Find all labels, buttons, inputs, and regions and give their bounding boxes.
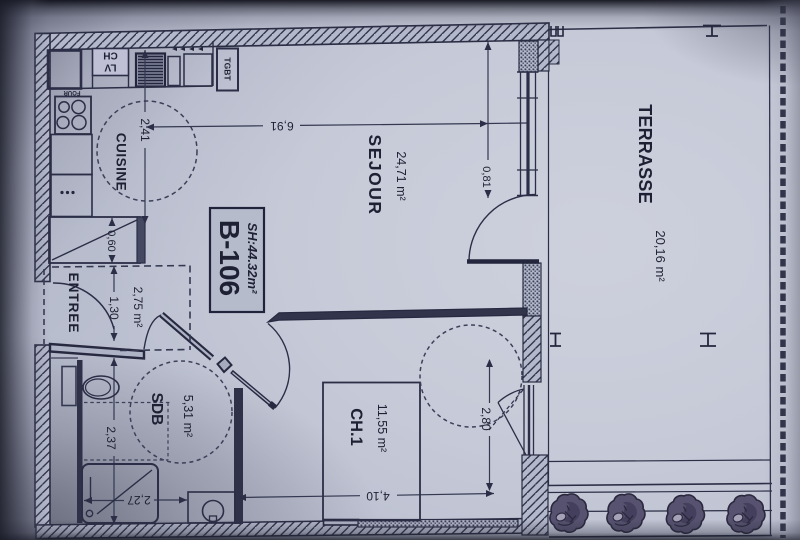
svg-text:ENTREE: ENTREE xyxy=(66,273,81,334)
svg-text:20,16 m²: 20,16 m² xyxy=(653,230,668,282)
svg-text:2,80: 2,80 xyxy=(479,407,493,431)
svg-text:1,30: 1,30 xyxy=(107,296,121,320)
svg-text:B-106: B-106 xyxy=(214,220,245,296)
svg-text:CH: CH xyxy=(103,50,117,61)
svg-text:5,31 m²: 5,31 m² xyxy=(181,395,195,437)
svg-text:2,27: 2,27 xyxy=(127,493,151,507)
svg-text:TERRASSE: TERRASSE xyxy=(635,104,655,204)
svg-text:2,37: 2,37 xyxy=(104,426,118,450)
svg-text:SEJOUR: SEJOUR xyxy=(365,135,385,216)
svg-text:SDB: SDB xyxy=(148,393,165,426)
svg-text:SH:44.32m²: SH:44.32m² xyxy=(245,223,260,294)
svg-text:LV: LV xyxy=(104,62,116,73)
svg-text:6,91: 6,91 xyxy=(270,119,294,133)
svg-text:2,75 m²: 2,75 m² xyxy=(131,287,145,328)
svg-text:24,71 m²: 24,71 m² xyxy=(394,151,408,200)
svg-text:4,10: 4,10 xyxy=(366,489,390,503)
svg-text:FOUR: FOUR xyxy=(63,89,81,95)
svg-text:TGBT: TGBT xyxy=(223,57,233,81)
svg-text:CH.1: CH.1 xyxy=(347,408,365,446)
svg-text:CUISINE: CUISINE xyxy=(114,133,129,191)
svg-text:0,60: 0,60 xyxy=(105,230,117,251)
svg-text:11,55 m²: 11,55 m² xyxy=(375,404,389,452)
svg-text:0,81: 0,81 xyxy=(480,166,492,187)
svg-text:2,41: 2,41 xyxy=(138,118,152,142)
